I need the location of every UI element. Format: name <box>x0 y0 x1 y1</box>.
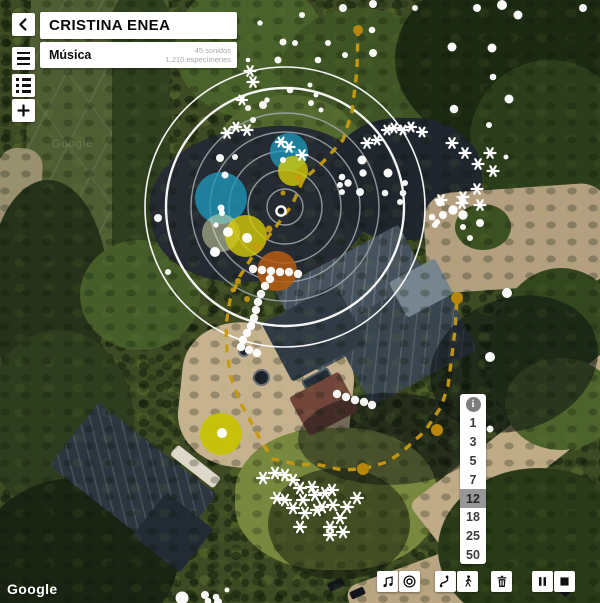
route-button[interactable] <box>435 571 456 592</box>
map-watermark: Google <box>52 138 94 151</box>
fountain <box>238 345 250 357</box>
scale-level-25[interactable]: 25 <box>460 527 486 546</box>
menu-button[interactable] <box>12 47 35 70</box>
walk-button[interactable] <box>457 571 478 592</box>
google-logo: Google <box>7 581 58 597</box>
scale-level-7[interactable]: 7 <box>460 470 486 489</box>
trash-button[interactable] <box>491 571 512 592</box>
page-title: CRISTINA ENEA <box>40 12 237 39</box>
scale-levels: 135712182550 <box>460 414 486 564</box>
scale-info-cell: i <box>460 394 486 414</box>
stats: 45 sonidos 1.210 especímenes <box>166 46 231 64</box>
pause-icon <box>536 575 549 588</box>
walk-icon <box>461 574 475 589</box>
back-button[interactable] <box>12 13 35 36</box>
target-button[interactable] <box>399 571 420 592</box>
music-icon <box>381 575 395 589</box>
level-scale: i 135712182550 <box>460 394 486 564</box>
map-view[interactable]: Google CRISTINA ENEA Música 45 sonidos 1… <box>0 0 600 603</box>
category-bar: Música 45 sonidos 1.210 especímenes <box>40 42 237 68</box>
terrain-shadow <box>298 393 480 485</box>
scale-level-18[interactable]: 18 <box>460 508 486 527</box>
stat-sounds: 45 sonidos <box>195 46 231 55</box>
fountain <box>253 369 270 386</box>
stop-button[interactable] <box>554 571 575 592</box>
stat-species: 1.210 especímenes <box>166 55 231 64</box>
scale-level-1[interactable]: 1 <box>460 414 486 433</box>
music-button[interactable] <box>377 571 398 592</box>
category-label: Música <box>49 48 91 62</box>
zoom-in-button[interactable] <box>12 99 35 122</box>
list-button[interactable] <box>12 74 35 97</box>
trash-icon <box>495 574 509 589</box>
scale-level-50[interactable]: 50 <box>460 546 486 565</box>
route-icon <box>438 574 453 589</box>
info-icon[interactable]: i <box>466 397 481 412</box>
stop-icon <box>558 575 571 588</box>
scale-level-3[interactable]: 3 <box>460 433 486 452</box>
chevron-left-icon <box>16 17 31 32</box>
scale-level-5[interactable]: 5 <box>460 452 486 471</box>
target-icon <box>402 574 417 589</box>
pause-button[interactable] <box>532 571 553 592</box>
plus-icon <box>16 103 31 118</box>
scale-level-12[interactable]: 12 <box>460 489 486 508</box>
terrain-patch <box>455 204 511 250</box>
